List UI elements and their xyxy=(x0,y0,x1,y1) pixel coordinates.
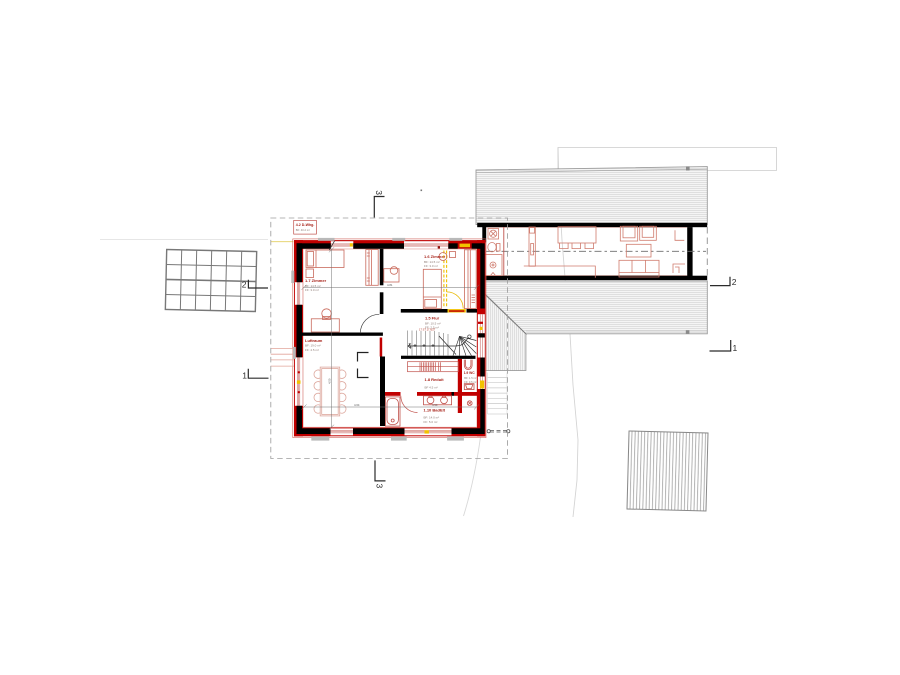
svg-text:4.2 D-Whg.: 4.2 D-Whg. xyxy=(296,223,315,227)
svg-text:FF: 3.0 m²: FF: 3.0 m² xyxy=(424,264,438,268)
svg-text:BF: 40.2 m²: BF: 40.2 m² xyxy=(296,228,310,232)
svg-text:1.6 Zimmer: 1.6 Zimmer xyxy=(424,254,446,259)
svg-text:FF: 0.5 m²: FF: 0.5 m² xyxy=(464,380,476,384)
svg-text:4.81: 4.81 xyxy=(387,283,393,287)
svg-text:Luftraum: Luftraum xyxy=(305,338,323,343)
svg-text:3: 3 xyxy=(375,484,385,489)
svg-text:BF: 1.5 m²: BF: 1.5 m² xyxy=(464,376,476,380)
svg-text:1.10 BadElt: 1.10 BadElt xyxy=(424,408,446,413)
svg-text:2: 2 xyxy=(242,279,247,289)
svg-text:FF: 5.0 m²: FF: 5.0 m² xyxy=(424,420,438,424)
svg-text:FF: 4.5 m²: FF: 4.5 m² xyxy=(305,348,319,352)
svg-text:BF 4.5 m²: BF 4.5 m² xyxy=(425,385,438,389)
svg-text:FF: 3.0 m²: FF: 3.0 m² xyxy=(305,288,319,292)
svg-text:1.7 Zimmer: 1.7 Zimmer xyxy=(305,278,327,283)
svg-text:FF: 2.5 m²: FF: 2.5 m² xyxy=(425,326,439,330)
svg-text:2: 2 xyxy=(732,277,737,287)
svg-text:BF: 14.0 m²: BF: 14.0 m² xyxy=(424,416,440,420)
svg-text:1: 1 xyxy=(242,371,247,381)
svg-text:1.8 Reduit: 1.8 Reduit xyxy=(425,377,445,382)
svg-text:1: 1 xyxy=(733,343,738,353)
svg-text:3: 3 xyxy=(374,190,384,195)
svg-text:4.50: 4.50 xyxy=(327,378,331,384)
svg-text:4.50: 4.50 xyxy=(432,403,438,407)
svg-text:4.64: 4.64 xyxy=(354,403,360,407)
svg-text:1.5 Flur: 1.5 Flur xyxy=(425,316,440,321)
svg-text:1.9 WC: 1.9 WC xyxy=(464,371,476,375)
